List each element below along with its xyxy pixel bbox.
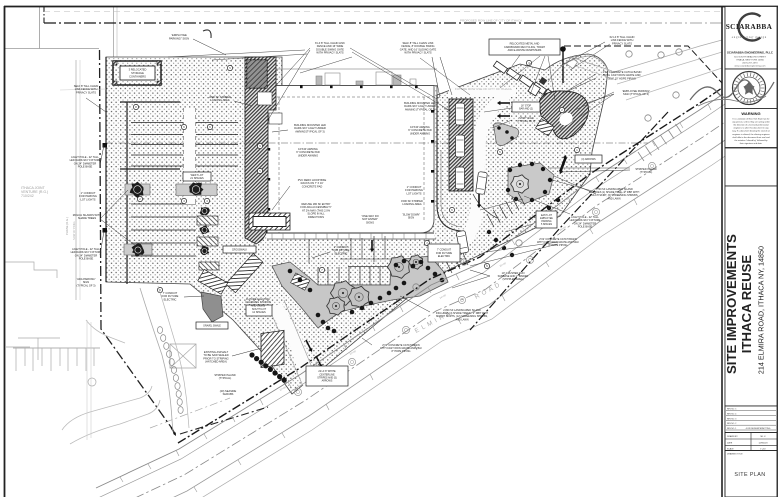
svg-text:REV NO. 3: REV NO. 3: [727, 418, 736, 420]
svg-text:DRAWN BY: DRAWN BY: [727, 435, 738, 438]
svg-text:EMPLOYEE: EMPLOYEE: [540, 218, 553, 220]
svg-text:way. If a document bearing the: way. If a document bearing the seal of a…: [732, 130, 771, 133]
svg-text:214 ELMIRA ROAD, ITHACA NY, 14: 214 ELMIRA ROAD, ITHACA NY, 14850: [757, 246, 766, 374]
svg-text:(HATCHED AREA): (HATCHED AREA): [205, 360, 227, 364]
svg-text:POLE BASE: POLE BASE: [578, 225, 593, 229]
svg-text:LOT LIGHTS: LOT LIGHTS: [80, 197, 95, 201]
svg-text:It is a violation of New York: It is a violation of New York State law …: [733, 118, 770, 121]
svg-text:PRIVACY SLATS: PRIVACY SLATS: [76, 90, 96, 94]
svg-text:(TYPICAL): (TYPICAL): [219, 376, 232, 380]
svg-text:ELECTRIC: ELECTRIC: [164, 297, 177, 301]
svg-text:ELECTRIC: ELECTRIC: [438, 255, 451, 258]
svg-text:www.sciarabbaengineering.com: www.sciarabbaengineering.com: [735, 65, 766, 68]
svg-text:REV NO. 2: REV NO. 2: [727, 423, 736, 425]
svg-text:their signature and date.: their signature and date.: [740, 142, 763, 145]
svg-text:AND LAWN: AND LAWN: [607, 197, 620, 200]
svg-text:e n g i n e e r i n g · d e: e n g i n e e r i n g · d e s i g n: [732, 35, 767, 39]
svg-text:(TYPICAL OF 3): (TYPICAL OF 3): [77, 283, 96, 287]
svg-text:(4) ARROWS: (4) ARROWS: [581, 158, 596, 161]
svg-text:GRAVEL SWALE: GRAVEL SWALE: [203, 324, 221, 327]
svg-text:8” HDPE PIPING: 8” HDPE PIPING: [391, 350, 410, 353]
svg-text:710/242: 710/242: [21, 194, 34, 198]
svg-text:STORAGE: STORAGE: [131, 71, 144, 75]
svg-text:21 SPACES: 21 SPACES: [190, 177, 204, 180]
svg-text:AND SIGNS: AND SIGNS: [251, 303, 266, 307]
svg-text:- FOR REVIEW/PERMITTING: - FOR REVIEW/PERMITTING: [745, 428, 771, 430]
svg-text:PARKING” SIGN: PARKING” SIGN: [169, 36, 189, 40]
svg-text:CROSSWALK: CROSSWALK: [232, 248, 248, 251]
svg-text:5 SPACES: 5 SPACES: [541, 223, 553, 226]
svg-text:(607) 257-1373: (607) 257-1373: [743, 63, 759, 65]
svg-text:SIGN: SIGN: [408, 216, 414, 220]
svg-text:ITHACA, NEW YORK 14850: ITHACA, NEW YORK 14850: [736, 59, 765, 62]
svg-text:the notation “altered by” foll: the notation “altered by” followed by: [735, 139, 769, 142]
svg-text:engineer, to alter this docume: engineer, to alter this document in any: [733, 127, 769, 130]
svg-text:CONCRETE PAD: CONCRETE PAD: [302, 184, 323, 188]
svg-text:50LF 10” HDPE PIPING: 50LF 10” HDPE PIPING: [608, 76, 636, 80]
svg-text:PROPOSED ROW LINE OF CITY: PROPOSED ROW LINE OF CITY OF ITHACA: [460, 19, 522, 23]
svg-text:SHRUBS: SHRUBS: [223, 392, 234, 396]
svg-text:SHADE TREES: SHADE TREES: [78, 216, 97, 220]
svg-text:DRAWING TITLE: DRAWING TITLE: [727, 453, 743, 456]
svg-text:REV NO. 1: REV NO. 1: [727, 428, 736, 430]
svg-text:WITH PRIVACY SLATS: WITH PRIVACY SLATS: [316, 51, 344, 55]
svg-text:AWNING(TYPICAL OF 3): AWNING(TYPICAL OF 3): [295, 129, 325, 133]
svg-text:12 SPACES: 12 SPACES: [252, 311, 266, 314]
svg-text:EAST LOT: EAST LOT: [541, 214, 553, 217]
svg-text:WITH PRIVACY SLATS: WITH PRIVACY SLATS: [404, 51, 432, 55]
svg-text:ITHACA REUSE: ITHACA REUSE: [739, 255, 754, 354]
svg-text:DATE: DATE: [727, 442, 733, 445]
svg-text:PRIVACY SLATS: PRIVACY SLATS: [612, 41, 632, 45]
svg-text:AND LAWN: AND LAWN: [455, 318, 468, 321]
svg-text:SCIARABBA ENGINEERING, PLLC: SCIARABBA ENGINEERING, PLLC: [727, 51, 773, 55]
svg-text:18” STOP: 18” STOP: [521, 105, 532, 107]
svg-text:POLE BASE: POLE BASE: [79, 257, 94, 261]
svg-text:AND E-WASTE DUMPSTERS: AND E-WASTE DUMPSTERS: [508, 49, 542, 52]
svg-text:BAR AND (2): BAR AND (2): [519, 107, 533, 110]
svg-text:UNDER AWNING: UNDER AWNING: [298, 153, 318, 157]
svg-text:LOT LIGHTS: LOT LIGHTS: [406, 191, 421, 195]
svg-text:shall affix to the document th: shall affix to the document their seal a…: [732, 136, 770, 139]
svg-text:CONTAINERS: CONTAINERS: [129, 74, 146, 78]
svg-text:SIGN (TYPICAL OF 4): SIGN (TYPICAL OF 4): [623, 92, 649, 96]
svg-text:(TYPICAL OF 3): (TYPICAL OF 3): [517, 120, 535, 123]
svg-text:SIGNS: SIGNS: [366, 220, 374, 224]
svg-text:DIRECTIONS: DIRECTIONS: [308, 215, 324, 219]
svg-text:LOADING AREA: LOADING AREA: [402, 202, 422, 206]
svg-text:WARNING: WARNING: [741, 111, 760, 116]
svg-text:engineer is altered, the alter: engineer is altered, the altering engine…: [732, 133, 770, 136]
svg-text:PHASE (R.G.): PHASE (R.G.): [65, 217, 69, 235]
svg-text:501 SOUTH MEADOW STREET: 501 SOUTH MEADOW STREET: [734, 56, 767, 59]
svg-text:PARKING: PARKING: [541, 220, 551, 223]
svg-text:3 RELOCATED: 3 RELOCATED: [129, 68, 147, 72]
svg-text:(STIPPLED AREA): (STIPPLED AREA): [502, 278, 523, 281]
svg-text:UNDER AWNING: UNDER AWNING: [410, 131, 430, 135]
svg-text:ELECTRIC: ELECTRIC: [335, 251, 348, 255]
svg-text:(TYPICAL): (TYPICAL): [640, 170, 653, 174]
svg-text:AWNING (TYPICAL OF 3): AWNING (TYPICAL OF 3): [405, 107, 435, 111]
svg-text:SCALE: SCALE: [727, 448, 734, 451]
svg-text:REV NO. 4: REV NO. 4: [727, 414, 736, 416]
svg-text:MJ. K: MJ. K: [760, 436, 766, 438]
svg-text:12/8/2023: 12/8/2023: [759, 443, 769, 445]
svg-text:the direction of a licensed pr: the direction of a licensed professional: [733, 124, 769, 127]
svg-text:SCIARABBA: SCIARABBA: [726, 22, 773, 31]
svg-text:ARROWS: ARROWS: [322, 379, 333, 382]
svg-text:SITE IMPROVEMENTS: SITE IMPROVEMENTS: [724, 234, 739, 374]
svg-text:REV NO. 5: REV NO. 5: [727, 409, 736, 411]
svg-text:SITE PLAN: SITE PLAN: [734, 472, 765, 478]
svg-text:NOW 30’ PRKG: NOW 30’ PRKG: [72, 222, 76, 241]
svg-text:POLE BASE: POLE BASE: [78, 165, 93, 169]
svg-text:LOADING AREA: LOADING AREA: [210, 98, 230, 102]
svg-text:any person, unless they are ac: any person, unless they are acting under: [732, 121, 770, 124]
